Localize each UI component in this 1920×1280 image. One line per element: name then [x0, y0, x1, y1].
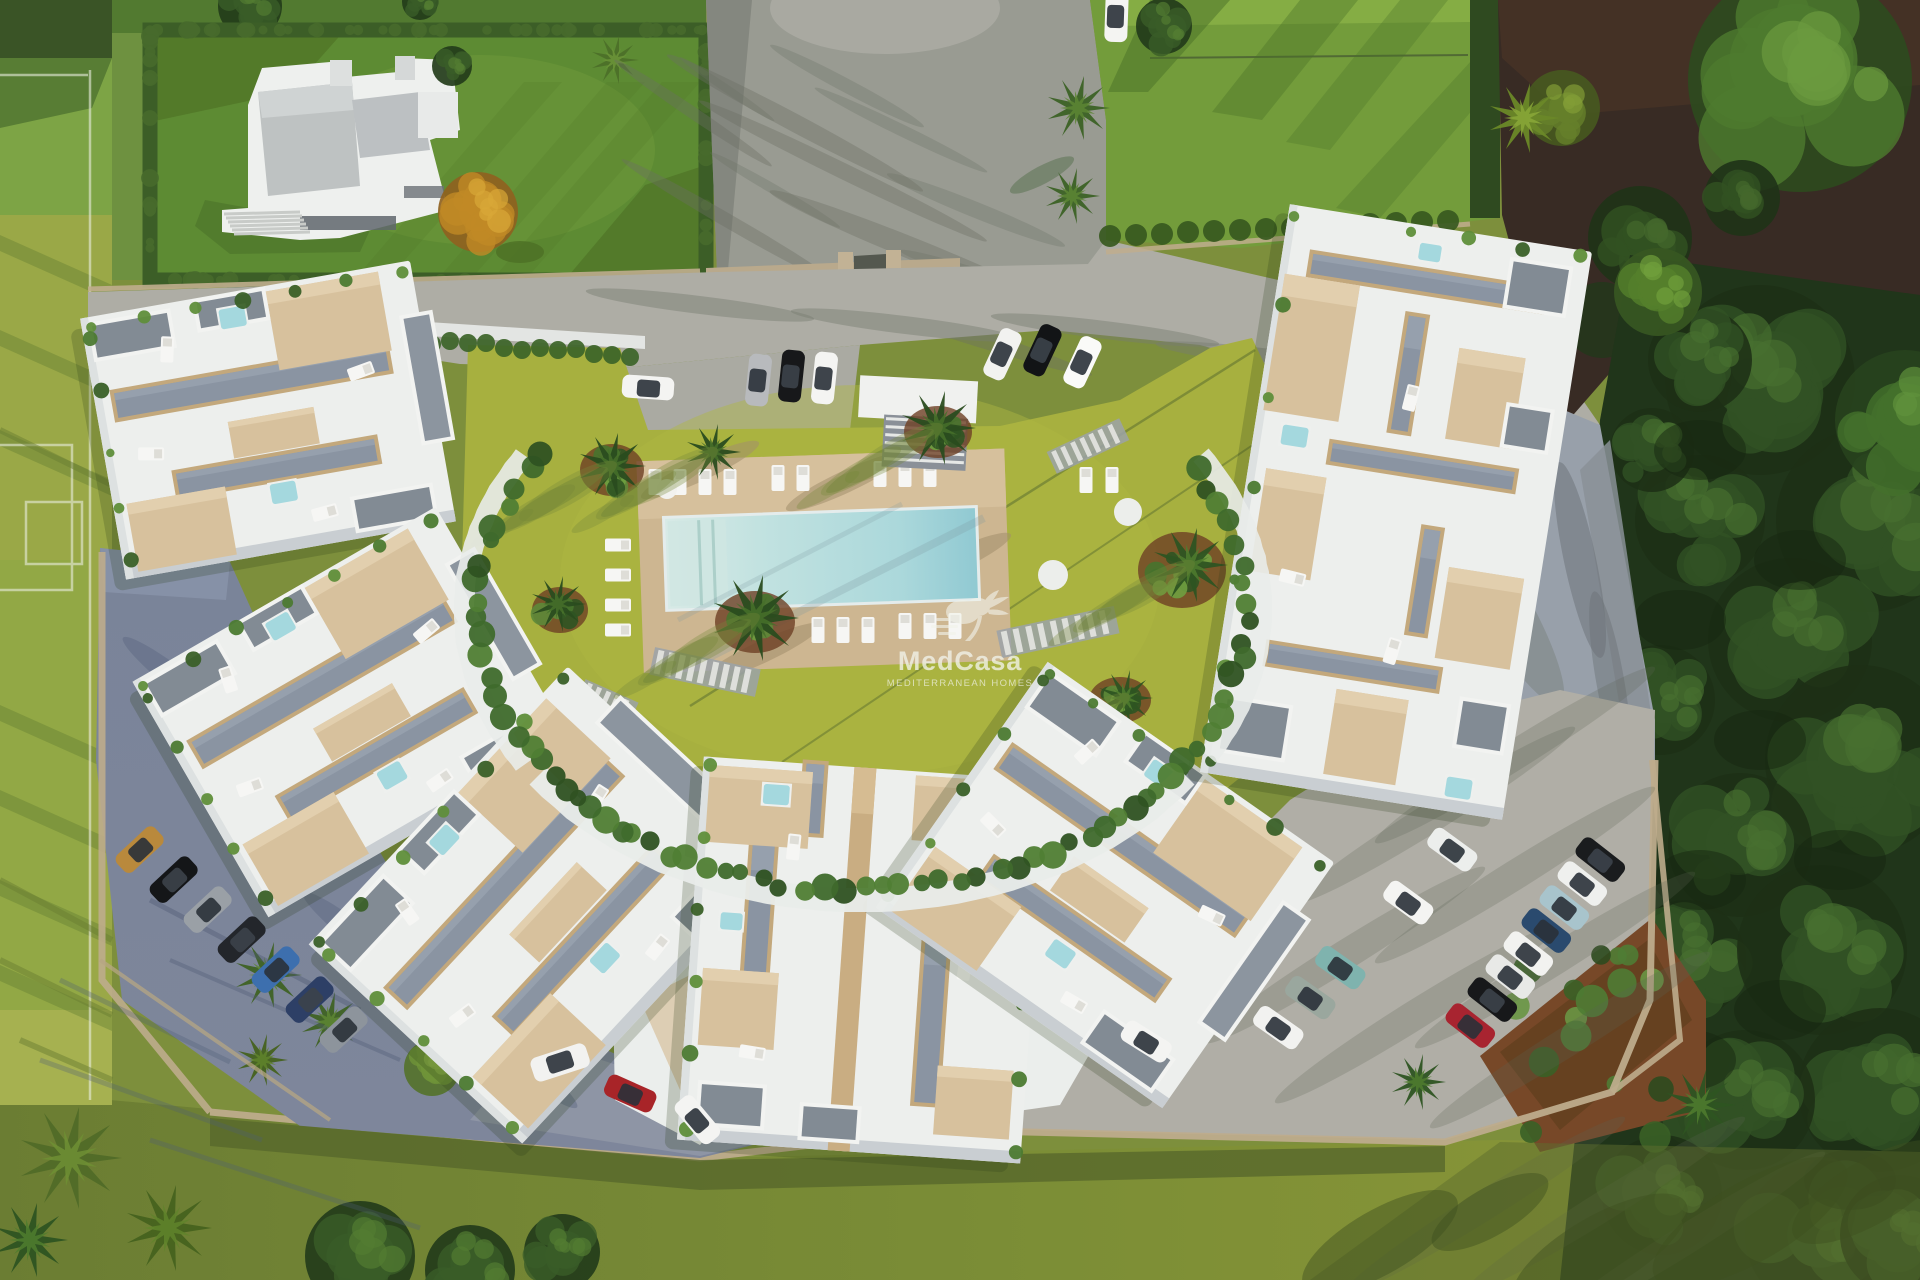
- svg-text:MedCasa: MedCasa: [898, 646, 1022, 676]
- svg-text:MEDITERRANEAN HOMES: MEDITERRANEAN HOMES: [887, 678, 1033, 689]
